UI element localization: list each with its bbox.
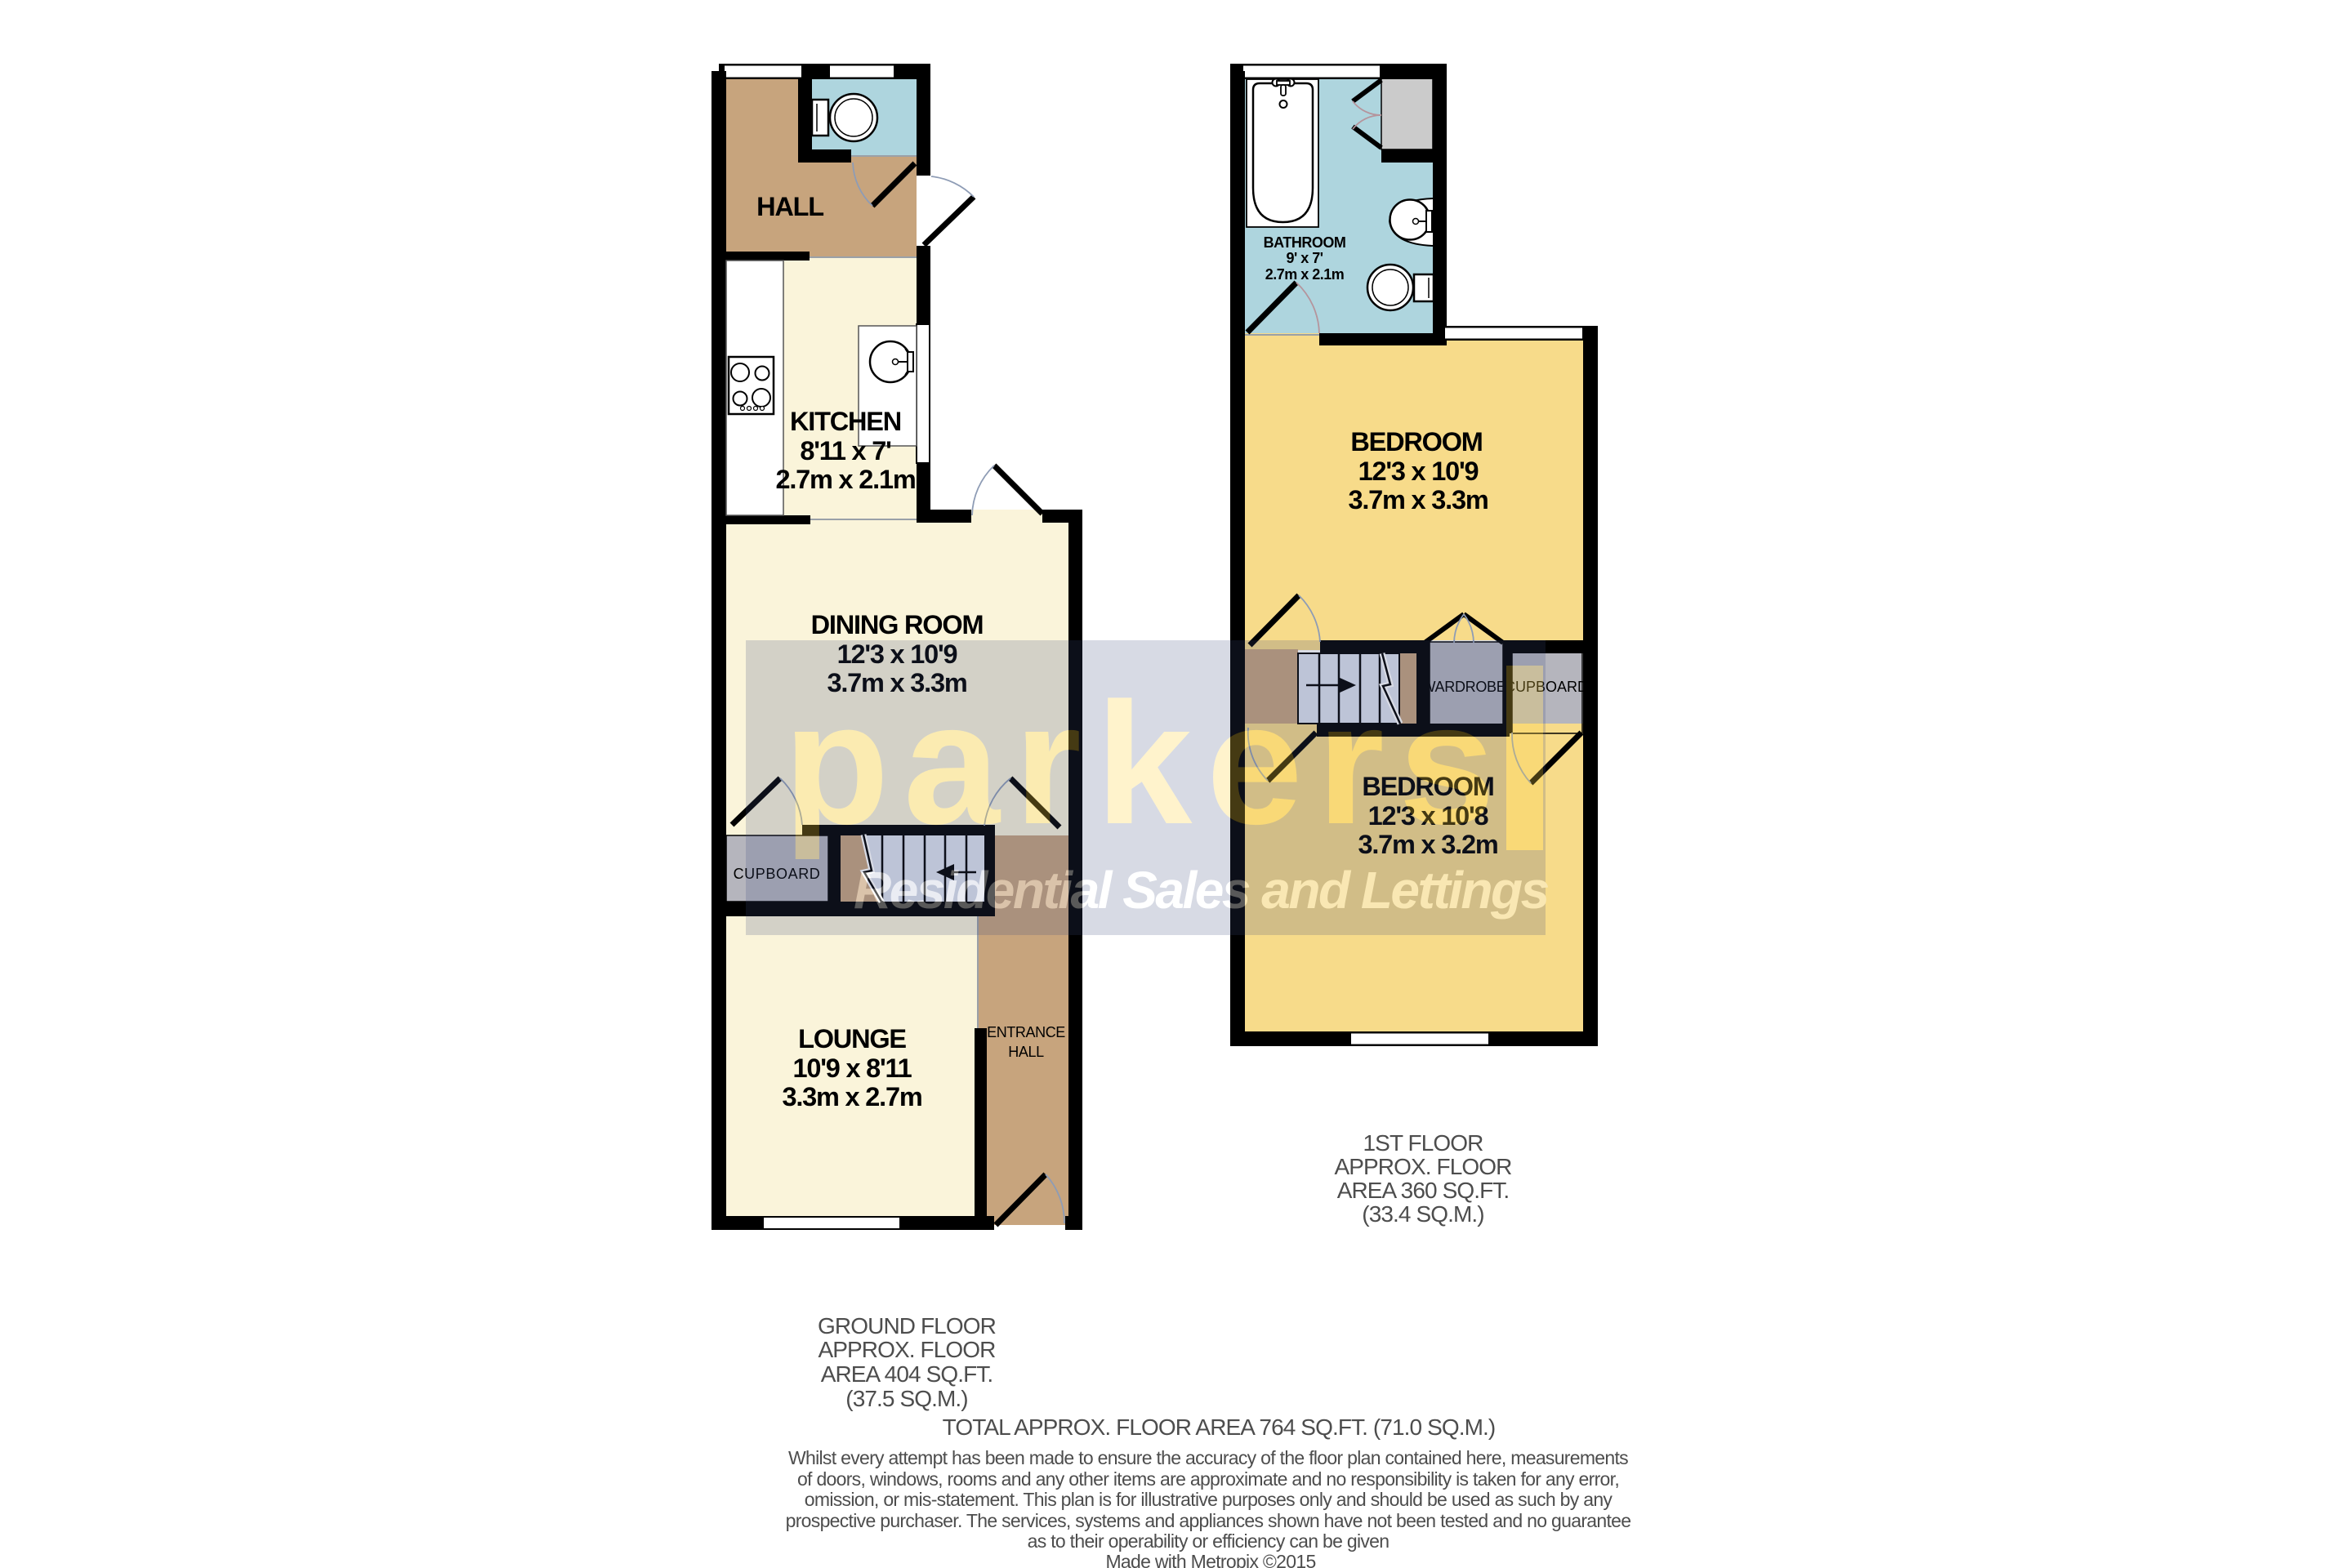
svg-text:TOTAL APPROX. FLOOR AREA 764 S: TOTAL APPROX. FLOOR AREA 764 SQ.FT. (71.…: [943, 1414, 1496, 1440]
svg-text:HALL: HALL: [756, 192, 823, 221]
svg-text:1ST FLOOR: 1ST FLOOR: [1363, 1130, 1483, 1156]
svg-text:Residential Sales and Lettings: Residential Sales and Lettings: [854, 861, 1549, 920]
svg-text:(33.4 SQ.M.): (33.4 SQ.M.): [1362, 1201, 1483, 1227]
svg-text:9' x 7': 9' x 7': [1286, 250, 1323, 266]
svg-text:8'11 x 7': 8'11 x 7': [800, 436, 891, 465]
svg-text:(37.5 SQ.M.): (37.5 SQ.M.): [845, 1386, 967, 1411]
svg-text:DINING ROOM: DINING ROOM: [811, 610, 984, 639]
svg-text:prospective purchaser. The ser: prospective purchaser. The services, sys…: [786, 1510, 1631, 1531]
svg-text:3.3m x 2.7m: 3.3m x 2.7m: [782, 1082, 921, 1111]
svg-text:AREA 360 SQ.FT.: AREA 360 SQ.FT.: [1337, 1178, 1510, 1203]
svg-text:ENTRANCE: ENTRANCE: [987, 1024, 1065, 1040]
svg-text:omission, or mis-statement. Th: omission, or mis-statement. This plan is…: [805, 1489, 1613, 1510]
svg-text:parkers: parkers: [783, 666, 1510, 860]
svg-text:AREA 404 SQ.FT.: AREA 404 SQ.FT.: [821, 1361, 993, 1387]
svg-text:BEDROOM: BEDROOM: [1350, 427, 1482, 457]
svg-text:LOUNGE: LOUNGE: [798, 1024, 906, 1053]
svg-text:KITCHEN: KITCHEN: [790, 407, 901, 436]
svg-text:2.7m x 2.1m: 2.7m x 2.1m: [1265, 266, 1345, 283]
svg-text:Whilst every attempt has been: Whilst every attempt has been made to en…: [788, 1447, 1628, 1468]
svg-text:10'9 x 8'11: 10'9 x 8'11: [792, 1053, 912, 1083]
svg-text:GROUND FLOOR: GROUND FLOOR: [818, 1313, 996, 1339]
svg-text:HALL: HALL: [1008, 1044, 1044, 1060]
svg-text:2.7m x 2.1m: 2.7m x 2.1m: [775, 465, 915, 494]
svg-text:Made with Metropix ©2015: Made with Metropix ©2015: [1105, 1551, 1315, 1568]
svg-text:APPROX. FLOOR: APPROX. FLOOR: [818, 1337, 995, 1362]
svg-text:12'3 x 10'9: 12'3 x 10'9: [1358, 457, 1479, 486]
svg-text:APPROX. FLOOR: APPROX. FLOOR: [1334, 1154, 1511, 1179]
svg-text:BATHROOM: BATHROOM: [1264, 234, 1346, 251]
svg-text:3.7m x 3.3m: 3.7m x 3.3m: [1348, 485, 1488, 514]
svg-text:as to their operability or eff: as to their operability or efficiency ca…: [1028, 1530, 1390, 1552]
svg-text:of doors, windows, rooms and a: of doors, windows, rooms and any other i…: [797, 1468, 1619, 1490]
